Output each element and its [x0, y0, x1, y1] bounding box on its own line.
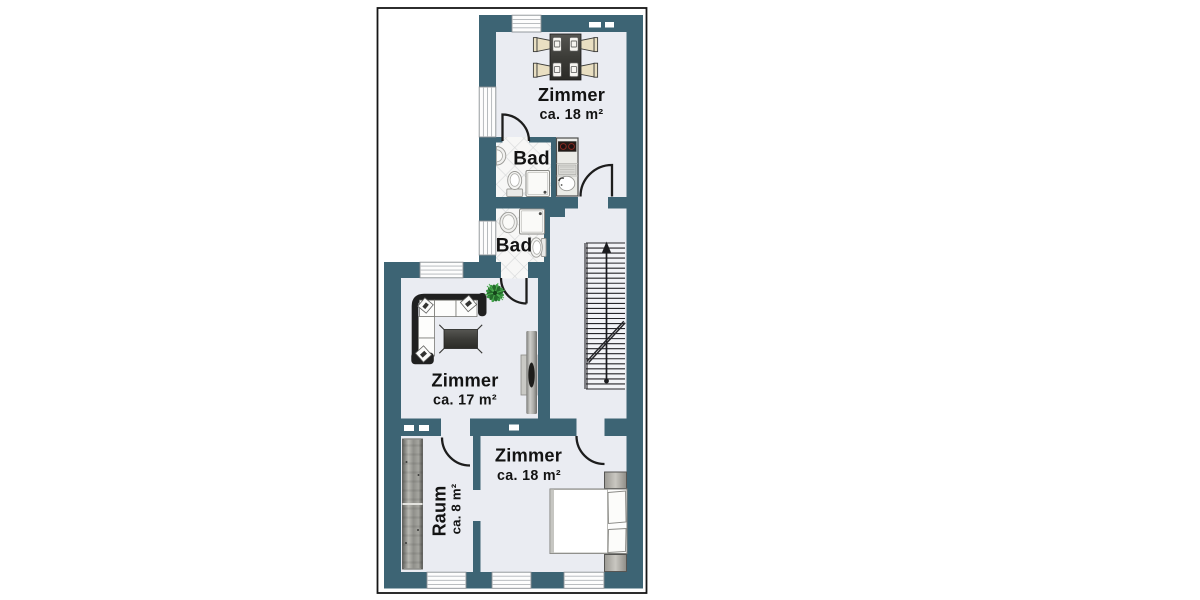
- svg-text:ca. 18 m²: ca. 18 m²: [540, 107, 604, 123]
- svg-text:Zimmer: Zimmer: [431, 370, 498, 391]
- svg-text:Zimmer: Zimmer: [495, 445, 562, 466]
- svg-text:Bad: Bad: [496, 236, 533, 257]
- svg-text:Raum: Raum: [430, 486, 450, 537]
- svg-text:Zimmer: Zimmer: [538, 84, 605, 105]
- svg-text:ca. 18 m²: ca. 18 m²: [497, 468, 561, 484]
- svg-text:ca. 8 m²: ca. 8 m²: [449, 483, 464, 534]
- svg-text:ca. 17 m²: ca. 17 m²: [433, 393, 497, 409]
- svg-text:Bad: Bad: [513, 149, 550, 170]
